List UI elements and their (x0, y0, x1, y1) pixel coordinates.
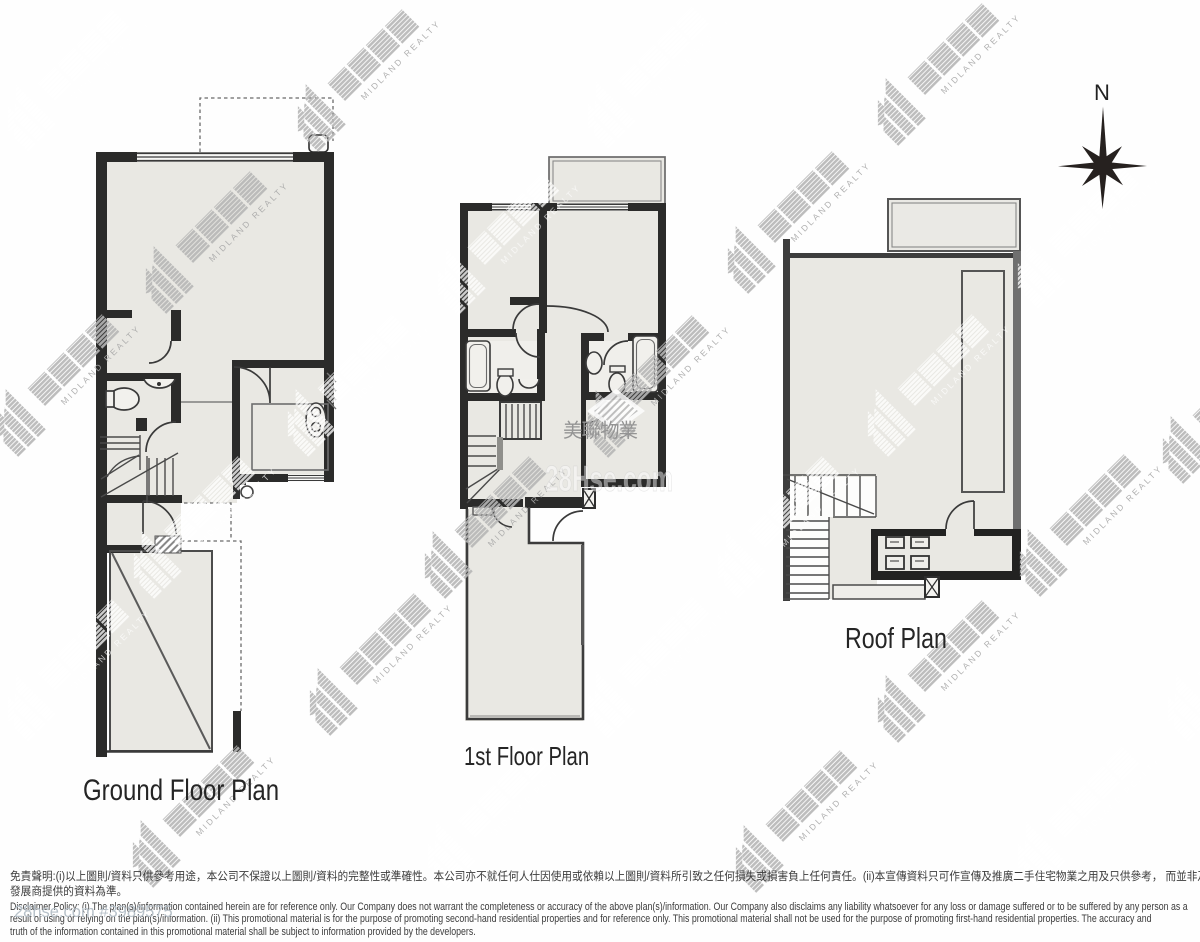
svg-text:28Hse.com: 28Hse.com (545, 458, 673, 499)
svg-text:N: N (1094, 80, 1110, 105)
svg-text:美聯物業: 美聯物業 (563, 420, 638, 442)
